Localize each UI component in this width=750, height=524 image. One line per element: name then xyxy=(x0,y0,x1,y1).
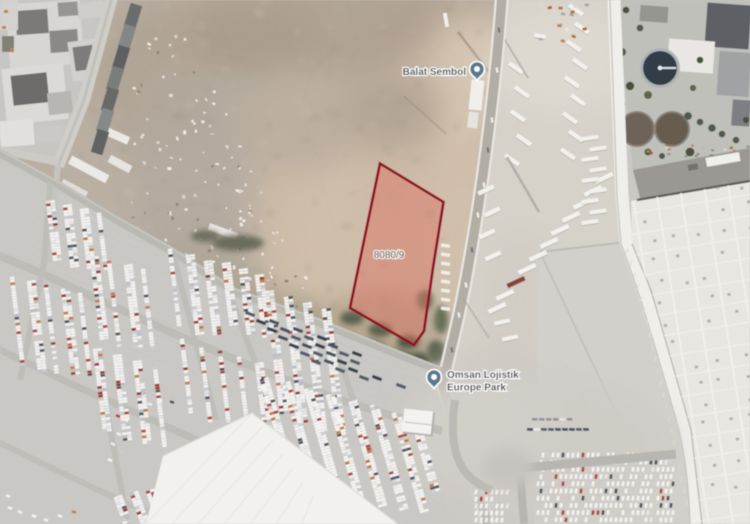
svg-text:Balat Sembol: Balat Sembol xyxy=(403,67,467,78)
svg-text:Europe Park: Europe Park xyxy=(447,383,506,394)
svg-text:8080/9: 8080/9 xyxy=(374,250,405,261)
svg-text:Omsan Lojistik: Omsan Lojistik xyxy=(447,370,519,381)
